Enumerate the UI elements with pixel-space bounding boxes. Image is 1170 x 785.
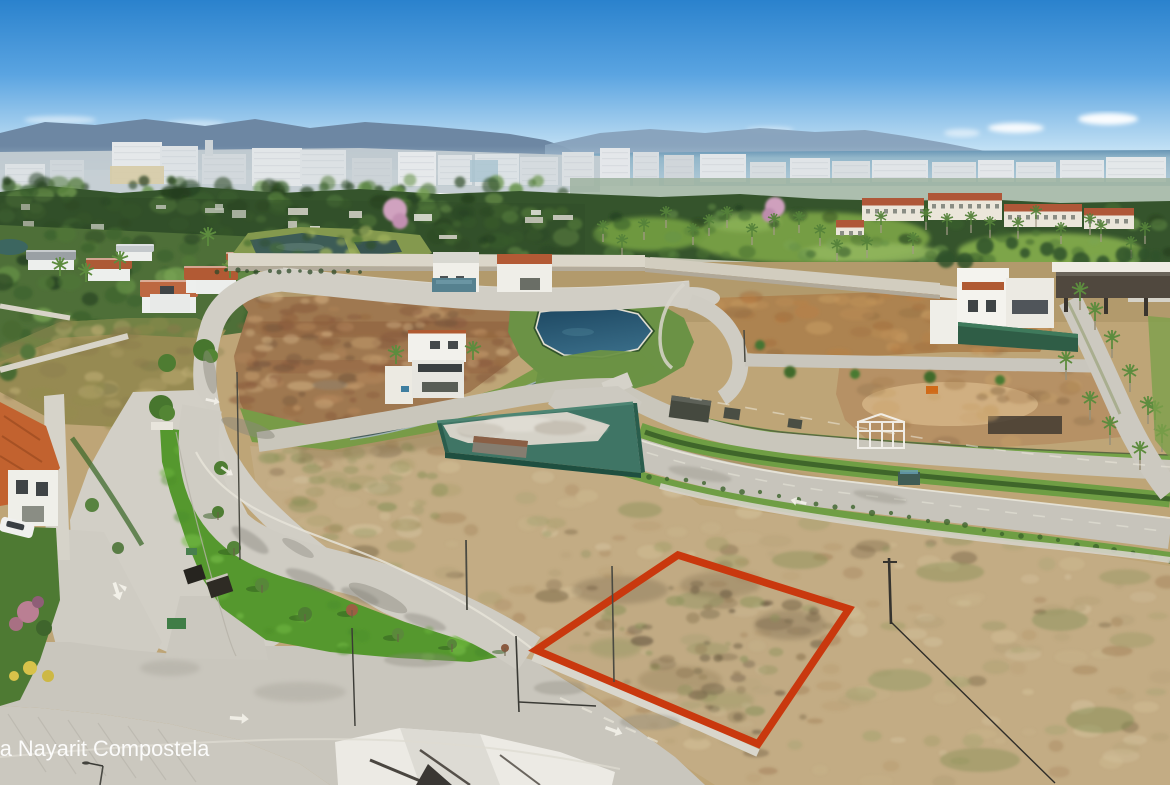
svg-text:ra Nayarit Compostela: ra Nayarit Compostela (0, 736, 210, 761)
